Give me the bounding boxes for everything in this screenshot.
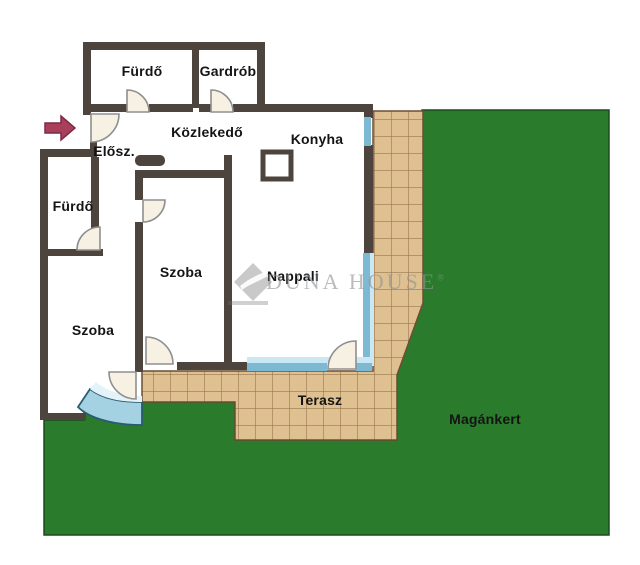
door-arc xyxy=(91,114,119,142)
room-label-szoba-mid: Szoba xyxy=(160,264,202,280)
room-label-kozlekedo: Közlekedő xyxy=(171,124,243,140)
door-arc xyxy=(127,90,149,112)
kitchen-fixture-symbol xyxy=(263,152,291,179)
door-arc xyxy=(143,200,165,222)
room-label-magankert: Magánkert xyxy=(449,411,521,427)
room-label-terasz: Terasz xyxy=(298,392,343,408)
room-label-furdo-left: Fürdő xyxy=(53,198,94,214)
room-label-gardrob: Gardrób xyxy=(200,63,257,79)
entrance-arrow-icon xyxy=(45,116,75,140)
door-arc xyxy=(146,337,173,364)
room-label-elosz: Elősz. xyxy=(93,143,135,159)
floor-plan: Fürdő Gardrób Közlekedő Konyha Elősz. Fü… xyxy=(0,0,640,565)
room-label-furdo-top: Fürdő xyxy=(122,63,163,79)
watermark-registered-mark: ® xyxy=(437,273,444,283)
room-label-szoba-left: Szoba xyxy=(72,322,114,338)
watermark: DUNA HOUSE® xyxy=(266,269,444,295)
door-arc xyxy=(211,90,233,112)
room-label-konyha: Konyha xyxy=(291,131,344,147)
door-arc xyxy=(77,227,100,250)
door-arc xyxy=(328,341,356,369)
watermark-brand: DUNA HOUSE xyxy=(266,269,437,294)
garden-area xyxy=(44,110,609,535)
